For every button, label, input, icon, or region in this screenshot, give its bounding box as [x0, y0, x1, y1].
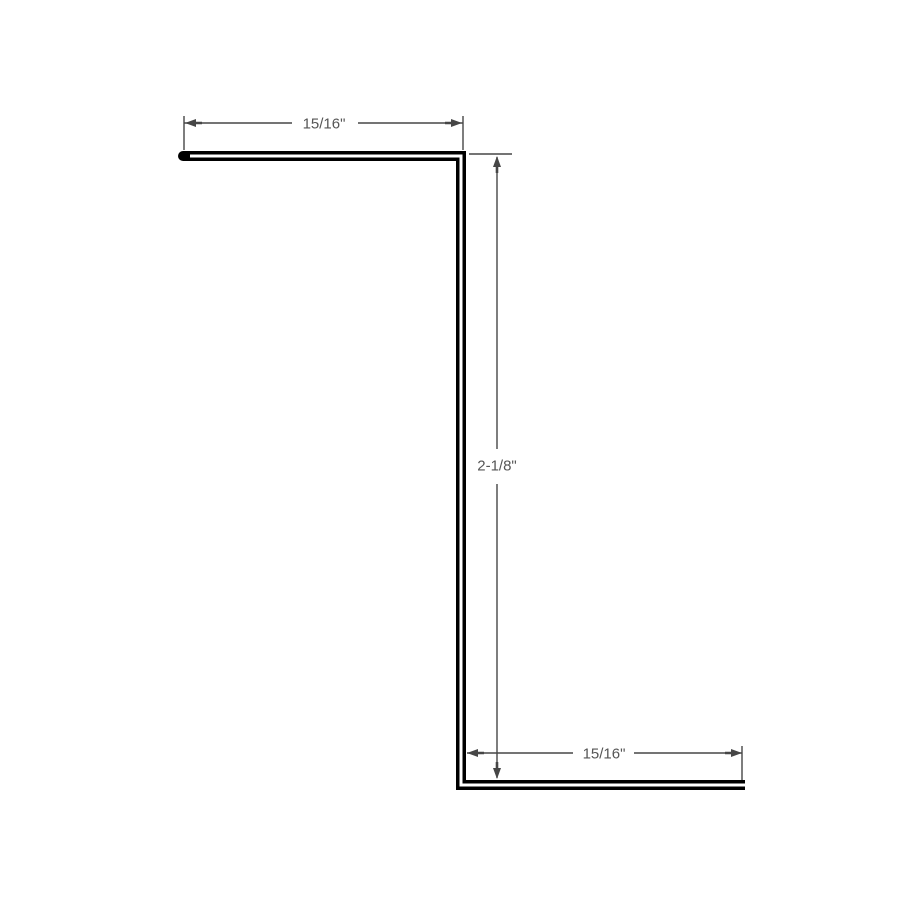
arrowhead-right-icon [445, 119, 462, 127]
dimension-top-flange: 15/16" [184, 116, 463, 151]
dimension-web-height: 2-1/8" [469, 154, 517, 779]
arrowhead-left-icon [185, 119, 202, 127]
profile-inner-gap [190, 156, 745, 785]
dimension-label-top-flange: 15/16" [303, 116, 346, 133]
z-profile-drawing: 15/16" 2-1/8" 15/16" [0, 0, 921, 920]
arrowhead-up-icon [493, 156, 501, 173]
dimension-label-bottom-flange: 15/16" [583, 746, 626, 763]
profile-hem-rounded-end [178, 151, 188, 161]
arrowhead-left-icon [467, 749, 484, 757]
dimension-label-web-height: 2-1/8" [477, 458, 517, 475]
dimension-bottom-flange: 15/16" [467, 746, 742, 781]
profile-outline [183, 156, 745, 785]
arrowhead-down-icon [493, 762, 501, 779]
z-profile-shape [178, 151, 745, 785]
arrowhead-right-icon [725, 749, 742, 757]
drawing-canvas: 15/16" 2-1/8" 15/16" [0, 0, 921, 920]
